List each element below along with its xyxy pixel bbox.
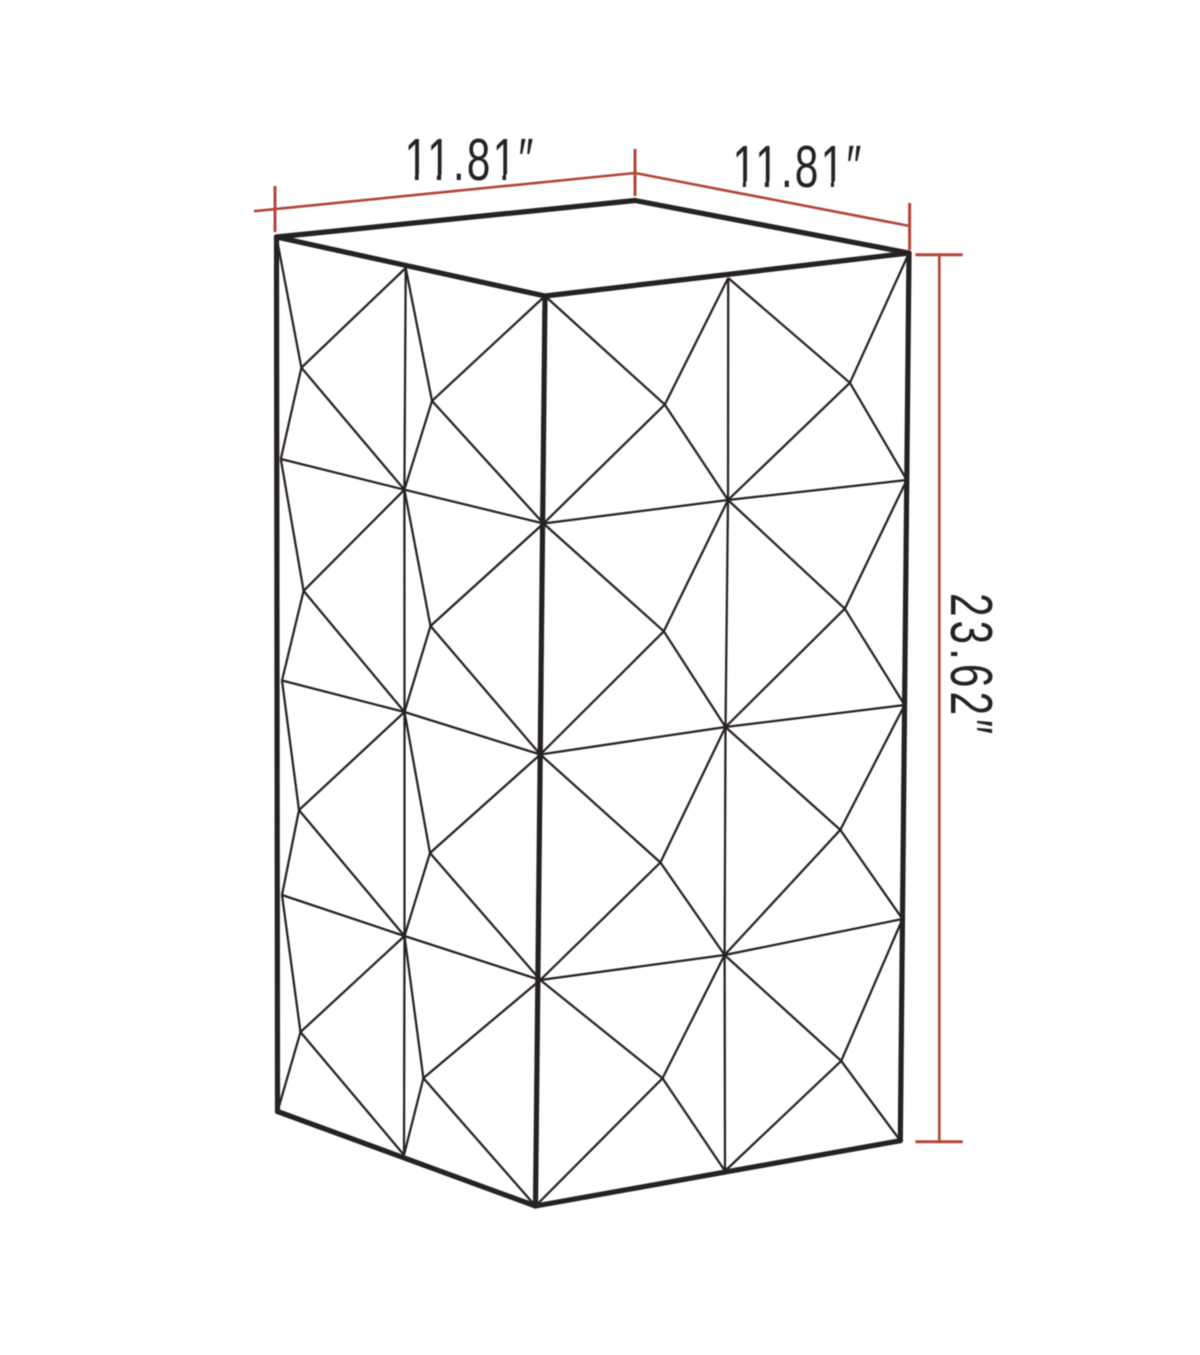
svg-text:11.81″: 11.81″ — [732, 133, 863, 200]
svg-text:11.81″: 11.81″ — [404, 126, 535, 193]
svg-text:23.62″: 23.62″ — [938, 593, 1005, 738]
